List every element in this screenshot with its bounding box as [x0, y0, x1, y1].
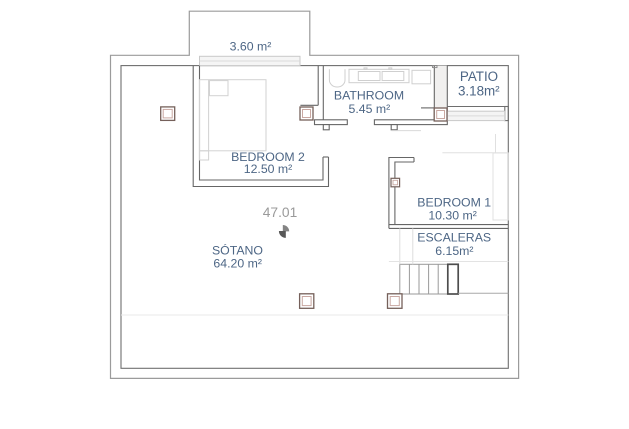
svg-text:3.60 m²: 3.60 m²	[230, 39, 272, 53]
svg-text:3.18m²: 3.18m²	[458, 83, 500, 98]
svg-text:PATIO: PATIO	[460, 69, 498, 84]
svg-text:6.15m²: 6.15m²	[435, 244, 473, 258]
svg-text:64.20 m²: 64.20 m²	[213, 257, 262, 271]
svg-text:47.01: 47.01	[263, 205, 298, 220]
svg-text:ESCALERAS: ESCALERAS	[417, 231, 491, 245]
svg-text:12.50 m²: 12.50 m²	[244, 162, 293, 176]
svg-text:BATHROOM: BATHROOM	[334, 89, 404, 103]
svg-text:5.45 m²: 5.45 m²	[349, 102, 391, 116]
svg-text:BEDROOM 1: BEDROOM 1	[417, 195, 491, 209]
svg-text:10.30 m²: 10.30 m²	[428, 208, 477, 222]
svg-text:SÓTANO: SÓTANO	[212, 243, 263, 258]
